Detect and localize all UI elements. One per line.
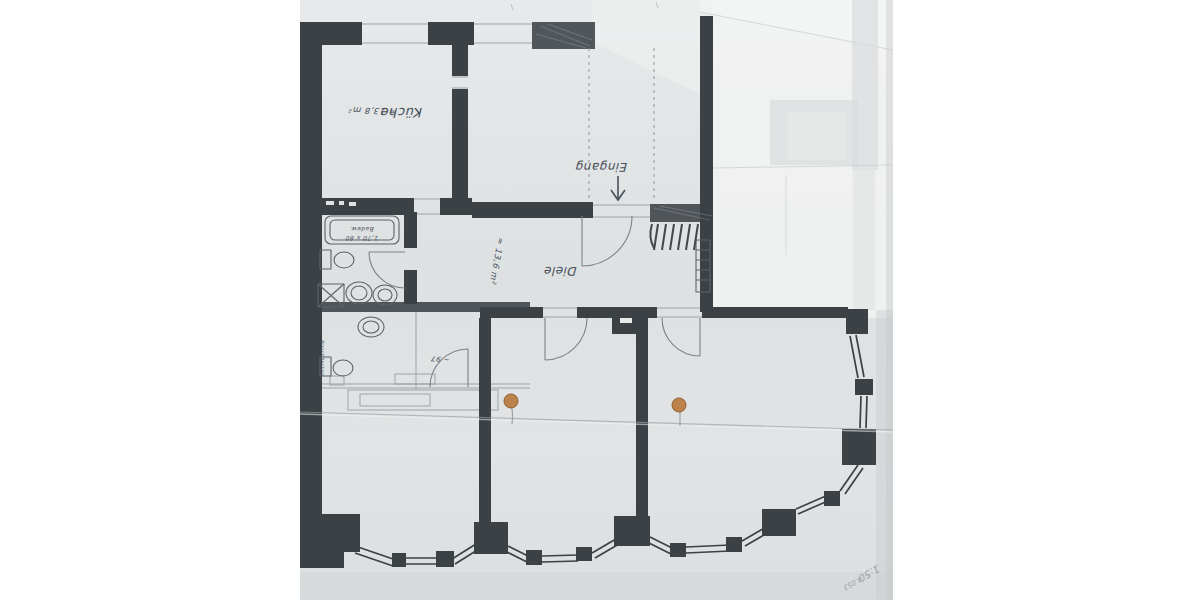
label-tub-size: 1,70 x 80	[345, 235, 379, 242]
floorplan-photo: Küche ≈ 13,8 m² Eingang Diele ≈ 13,6 m² …	[0, 0, 1200, 600]
kitchen-bottom-wall	[300, 198, 414, 215]
screenshot-canvas: Küche ≈ 13,8 m² Eingang Diele ≈ 13,6 m² …	[0, 0, 1200, 600]
ghost-block-inner	[788, 112, 846, 160]
label-tub-name: Badew.	[350, 226, 375, 233]
label-bath-side-note: Waschbecken	[320, 340, 325, 376]
corner-pier-left	[300, 514, 360, 552]
label-eingang: Eingang	[575, 160, 628, 174]
entrance-right-wall	[700, 16, 713, 312]
label-diele: Diele	[543, 264, 577, 278]
outer-wall-left	[300, 22, 322, 518]
